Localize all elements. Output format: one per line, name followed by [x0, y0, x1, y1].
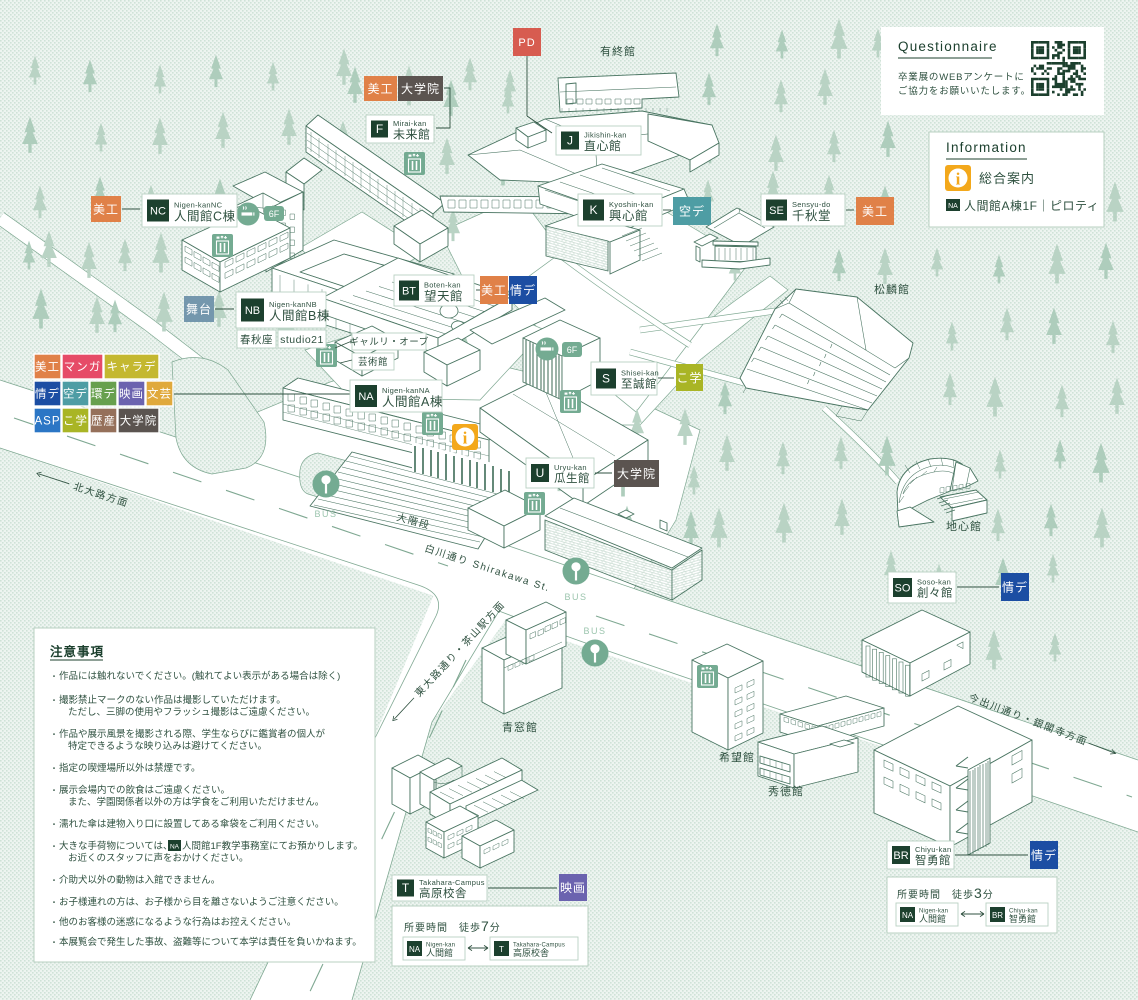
svg-text:至誠館: 至誠館: [621, 377, 657, 391]
svg-text:Sensyu-do: Sensyu-do: [792, 200, 831, 209]
svg-text:秀徳館: 秀徳館: [768, 784, 804, 798]
svg-text:・: ・: [50, 730, 58, 739]
svg-text:大きな手荷物については、: 大きな手荷物については、: [59, 840, 173, 852]
svg-text:Questionnaire: Questionnaire: [898, 39, 998, 54]
svg-text:大学院: 大学院: [617, 466, 656, 481]
svg-text:智勇館: 智勇館: [915, 853, 951, 867]
svg-text:BR: BR: [992, 911, 1003, 920]
svg-text:注意事項: 注意事項: [50, 644, 104, 659]
svg-text:こ学: こ学: [676, 370, 702, 385]
svg-text:人間館B棟: 人間館B棟: [269, 308, 330, 323]
svg-text:T: T: [499, 945, 504, 954]
svg-text:地心館: 地心館: [946, 519, 982, 533]
svg-text:お子様連れの方は、お子様から目を離さないようご注意ください。: お子様連れの方は、お子様から目を離さないようご注意ください。: [59, 896, 344, 908]
svg-text:NA: NA: [902, 911, 914, 920]
svg-text:BT: BT: [402, 286, 416, 298]
svg-text:BUS: BUS: [564, 592, 587, 602]
svg-text:K: K: [589, 203, 597, 217]
svg-text:Boten-kan: Boten-kan: [424, 281, 461, 290]
svg-text:撮影禁止マークのない作品は撮影していただけます。: 撮影禁止マークのない作品は撮影していただけます。: [59, 694, 286, 706]
svg-text:直心館: 直心館: [584, 138, 622, 153]
svg-text:青窓館: 青窓館: [502, 720, 538, 734]
svg-text:大学院: 大学院: [401, 81, 440, 96]
svg-text:興心館: 興心館: [609, 208, 648, 223]
svg-text:キャラデ: キャラデ: [107, 360, 157, 374]
svg-text:美工: 美工: [481, 283, 507, 297]
svg-text:・: ・: [50, 786, 58, 795]
svg-text:空デ: 空デ: [63, 387, 88, 401]
svg-text:BUS: BUS: [314, 509, 337, 519]
svg-text:・: ・: [50, 842, 58, 851]
svg-text:人間館: 人間館: [426, 947, 453, 958]
svg-text:情デ: 情デ: [1002, 579, 1028, 594]
svg-text:舞台: 舞台: [186, 301, 212, 316]
svg-text:人間館A棟1F｜ピロティ: 人間館A棟1F｜ピロティ: [964, 198, 1099, 213]
svg-text:ギャルリ・オーブ: ギャルリ・オーブ: [349, 336, 428, 348]
svg-text:・: ・: [50, 898, 58, 907]
svg-text:また、学園関係者以外の方は学食をご利用いただけません。: また、学園関係者以外の方は学食をご利用いただけません。: [68, 796, 324, 808]
svg-text:芸術館: 芸術館: [358, 356, 388, 368]
svg-text:環デ: 環デ: [91, 387, 116, 401]
svg-text:6F: 6F: [567, 345, 578, 355]
svg-text:U: U: [536, 466, 545, 480]
svg-text:情デ: 情デ: [1031, 847, 1057, 862]
svg-text:美工: 美工: [367, 82, 393, 96]
svg-text:情デ: 情デ: [510, 282, 536, 297]
svg-text:ASP: ASP: [34, 416, 60, 428]
svg-text:ご協力をお願いいたします。: ご協力をお願いいたします。: [898, 85, 1031, 97]
svg-text:studio21: studio21: [280, 334, 324, 346]
svg-text:人間館A棟: 人間館A棟: [382, 394, 443, 409]
svg-text:Chiyu-kan: Chiyu-kan: [915, 845, 951, 854]
svg-text:Uryu-kan: Uryu-kan: [554, 463, 587, 472]
svg-text:他のお客様の迷惑になるような行為はお控えください。: 他のお客様の迷惑になるような行為はお控えください。: [59, 916, 296, 928]
svg-text:空デ: 空デ: [679, 203, 705, 218]
svg-text:希望館: 希望館: [719, 750, 755, 764]
svg-text:人間館: 人間館: [919, 913, 946, 924]
svg-text:・: ・: [50, 820, 58, 829]
svg-text:NC: NC: [150, 206, 166, 218]
svg-text:PD: PD: [518, 37, 535, 49]
svg-text:Kyoshin-kan: Kyoshin-kan: [609, 200, 654, 209]
svg-text:瓜生館: 瓜生館: [554, 471, 590, 485]
svg-text:智勇館: 智勇館: [1009, 913, 1036, 924]
svg-text:望天館: 望天館: [424, 289, 463, 304]
svg-text:本展覧会で発生した事故、盗難等について本学は責任を負いかねま: 本展覧会で発生した事故、盗難等について本学は責任を負いかねます。: [59, 936, 362, 948]
svg-text:総合案内: 総合案内: [979, 171, 1035, 186]
svg-text:Nigen-kanNC: Nigen-kanNC: [174, 201, 223, 210]
svg-text:Nigen-kanNA: Nigen-kanNA: [382, 386, 430, 395]
svg-text:情デ: 情デ: [35, 387, 60, 401]
svg-text:展示会場内での飲食はご遠慮ください。: 展示会場内での飲食はご遠慮ください。: [59, 784, 230, 796]
svg-text:春秋座: 春秋座: [240, 333, 273, 346]
svg-text:作品には触れないでください。(触れてよい表示がある場合は除く: 作品には触れないでください。(触れてよい表示がある場合は除く): [59, 670, 340, 682]
svg-text:人間館1F教学事務室にてお預かりします。: 人間館1F教学事務室にてお預かりします。: [182, 840, 363, 852]
svg-text:こ学: こ学: [63, 414, 88, 428]
svg-text:・: ・: [50, 938, 58, 947]
svg-text:指定の喫煙場所以外は禁煙です。: 指定の喫煙場所以外は禁煙です。: [59, 762, 201, 774]
svg-text:美工: 美工: [93, 202, 119, 216]
svg-text:・: ・: [50, 764, 58, 773]
svg-text:Shisei-kan: Shisei-kan: [621, 369, 659, 378]
svg-text:Takahara-Campus: Takahara-Campus: [419, 878, 485, 887]
svg-text:Nigen-kanNB: Nigen-kanNB: [269, 300, 317, 309]
svg-text:・: ・: [50, 918, 58, 927]
svg-text:美工: 美工: [35, 360, 60, 374]
svg-text:映画: 映画: [560, 881, 586, 895]
svg-text:・: ・: [50, 876, 58, 885]
svg-text:卒業展のWEBアンケートに: 卒業展のWEBアンケートに: [898, 71, 1025, 83]
svg-text:Soso-kan: Soso-kan: [917, 578, 951, 587]
svg-text:歴産: 歴産: [91, 414, 116, 428]
svg-text:NB: NB: [245, 305, 260, 317]
svg-text:BUS: BUS: [583, 626, 606, 636]
svg-text:映画: 映画: [119, 388, 144, 401]
svg-text:S: S: [602, 372, 610, 386]
svg-text:人間館C棟: 人間館C棟: [174, 209, 236, 224]
svg-text:千秋堂: 千秋堂: [792, 209, 831, 223]
svg-text:美工: 美工: [862, 204, 888, 218]
svg-text:マンガ: マンガ: [64, 361, 102, 374]
svg-text:BR: BR: [893, 850, 908, 862]
svg-text:・: ・: [50, 672, 58, 681]
svg-text:未来館: 未来館: [393, 127, 431, 142]
svg-text:NA: NA: [948, 203, 958, 210]
svg-text:作品や展示風景を撮影される際、学生ならびに鑑賞者の個人が: 作品や展示風景を撮影される際、学生ならびに鑑賞者の個人が: [59, 728, 326, 740]
svg-text:6F: 6F: [269, 209, 280, 219]
svg-text:創々館: 創々館: [917, 586, 953, 600]
svg-text:T: T: [402, 881, 410, 895]
svg-text:特定できるような映り込みは避けてください。: 特定できるような映り込みは避けてください。: [68, 740, 267, 752]
svg-text:大学院: 大学院: [120, 414, 158, 428]
svg-text:高原校舎: 高原校舎: [513, 947, 549, 958]
svg-text:SO: SO: [895, 583, 911, 595]
svg-text:・: ・: [50, 696, 58, 705]
svg-text:SE: SE: [769, 205, 784, 217]
svg-text:お近くのスタッフに声をおかけください。: お近くのスタッフに声をおかけください。: [68, 852, 249, 864]
svg-text:ただし、三脚の使用やフラッシュ撮影はご遠慮ください。: ただし、三脚の使用やフラッシュ撮影はご遠慮ください。: [68, 706, 315, 718]
svg-text:J: J: [567, 134, 573, 148]
svg-text:F: F: [376, 122, 383, 136]
svg-text:NA: NA: [409, 945, 421, 954]
svg-text:濡れた傘は建物入り口に設置してある傘袋をご利用ください。: 濡れた傘は建物入り口に設置してある傘袋をご利用ください。: [59, 818, 324, 830]
svg-text:介助犬以外の動物は入館できません。: 介助犬以外の動物は入館できません。: [59, 874, 220, 886]
svg-text:有終館: 有終館: [600, 44, 636, 58]
svg-text:文芸: 文芸: [147, 387, 172, 401]
svg-text:Information: Information: [946, 140, 1027, 155]
svg-text:高原校舎: 高原校舎: [419, 886, 467, 900]
svg-text:松麟館: 松麟館: [874, 282, 910, 296]
svg-text:NA: NA: [358, 391, 374, 403]
